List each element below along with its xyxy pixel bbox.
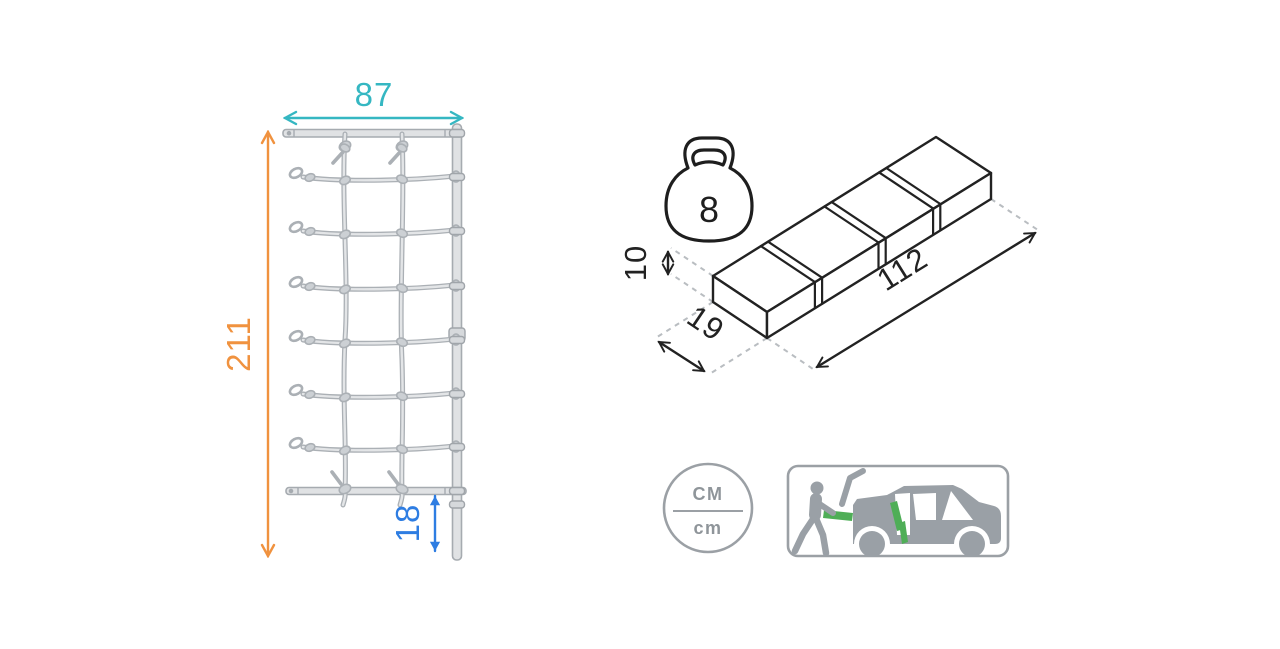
- net-bottom-bar: [286, 488, 466, 495]
- net-row: [288, 383, 460, 403]
- package-weight-value: 8: [699, 189, 719, 230]
- net-row: [288, 329, 460, 349]
- climbing-net-diagram: 87 211 18: [220, 76, 466, 560]
- height-dimension: 211: [220, 132, 268, 556]
- front-window: [913, 493, 936, 520]
- net-row: [288, 436, 460, 456]
- product-dimensions-sheet: 87 211 18 8: [0, 0, 1280, 649]
- net-row: [288, 220, 460, 240]
- package-height-value: 10: [618, 245, 653, 281]
- net-top-bar: [283, 130, 463, 138]
- package-height-dimension: 10: [618, 245, 668, 281]
- net-row: [288, 166, 460, 186]
- rear-wheel: [859, 531, 885, 557]
- net-height-value: 211: [220, 316, 257, 372]
- person-head: [811, 482, 824, 495]
- units-badge-circle: [664, 464, 752, 552]
- front-wheel: [959, 531, 985, 557]
- units-badge: CM cm: [664, 464, 752, 552]
- net-row: [288, 275, 460, 295]
- units-denominator: cm: [693, 518, 722, 538]
- package-depth-dimension: 19: [659, 299, 731, 371]
- kettlebell-handle-opening: [693, 150, 725, 165]
- ground-clearance-dimension: 18: [389, 496, 435, 551]
- kettlebell-weight-icon: 8: [666, 138, 752, 241]
- net-rope-rows: [288, 166, 460, 456]
- units-numerator: CM: [693, 484, 724, 504]
- package-box: [713, 137, 991, 338]
- car-trunk-fit-icon: [788, 466, 1008, 557]
- width-dimension: 87: [285, 76, 462, 118]
- net-width-value: 87: [355, 76, 394, 113]
- ground-clearance-value: 18: [389, 504, 426, 543]
